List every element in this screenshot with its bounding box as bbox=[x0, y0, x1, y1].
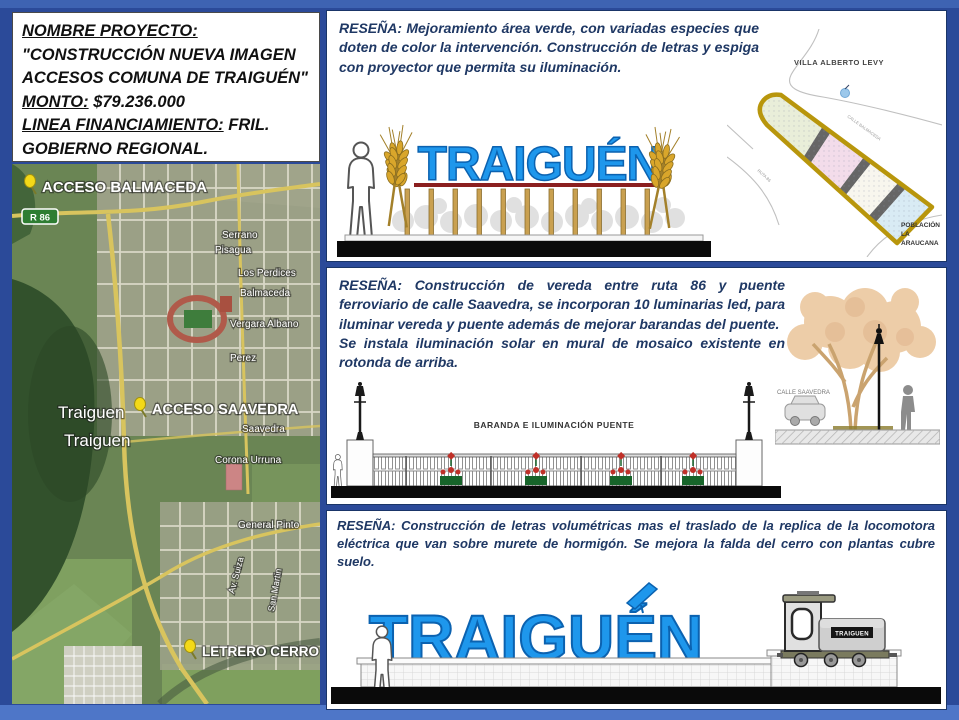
project-name-line2: ACCESOS COMUNA DE TRAIGUÉN" bbox=[22, 67, 310, 91]
map-label-perez: Perez bbox=[230, 353, 256, 364]
map-label-vergara-albano: Vergara Albano bbox=[230, 319, 299, 330]
cerro-sign-svg: TRAIGUÉN bbox=[331, 567, 941, 707]
site-plan-svg: VILLA ALBERTO LEVY CALLE BALMACEDA RUTA … bbox=[727, 29, 942, 257]
plan-label-villa: VILLA ALBERTO LEVY bbox=[794, 58, 884, 67]
sign-elevation-svg: TRAIGUÉN bbox=[331, 113, 716, 261]
cerro-sign-base bbox=[331, 687, 941, 704]
sign-word-traiguen: TRAIGUÉN bbox=[418, 137, 661, 191]
bridge-pillar-right bbox=[736, 440, 762, 486]
water-drop-icon bbox=[841, 85, 850, 98]
locomotive-icon: TRAIGUEN bbox=[777, 591, 897, 667]
resena-2: RESEÑA: Construcción de vereda entre rut… bbox=[339, 276, 785, 373]
map-label-los-perdices: Los Perdices bbox=[238, 268, 296, 279]
resena-1-text: Mejoramiento área verde, con variadas es… bbox=[339, 20, 759, 75]
map-label-letrero-cerro: LETRERO CERRO bbox=[202, 644, 319, 659]
resena-2-label: RESEÑA: bbox=[339, 277, 402, 293]
map-label-serrano: Serrano bbox=[222, 230, 258, 241]
bridge-base bbox=[331, 486, 781, 498]
project-info-box: NOMBRE PROYECTO: "CONSTRUCCIÓN NUEVA IMA… bbox=[12, 12, 320, 162]
map-label-acceso-saavedra: ACCESO SAAVEDRA bbox=[152, 402, 299, 418]
street-lamp-icon bbox=[743, 382, 755, 440]
monto-label: MONTO: bbox=[22, 93, 89, 111]
map-label-corona-urruna: Corona Urruna bbox=[215, 455, 282, 466]
project-name-line1: "CONSTRUCCIÓN NUEVA IMAGEN bbox=[22, 44, 310, 68]
resena-3-label: RESEÑA: bbox=[337, 518, 396, 533]
sign-platform bbox=[345, 235, 703, 241]
map-label-general-pinto: General Pinto bbox=[238, 520, 300, 531]
route-badge: R 86 bbox=[22, 209, 58, 224]
railing bbox=[373, 454, 736, 486]
sign-base bbox=[337, 241, 711, 257]
bridge-label: BARANDA E ILUMINACIÓN PUENTE bbox=[474, 419, 635, 430]
panel-letrero-cerro: RESEÑA: Construcción de letras volumétri… bbox=[326, 510, 947, 710]
resena-2-text2: Se instala iluminación solar en mural de… bbox=[339, 335, 785, 370]
linea-value: FRIL. bbox=[224, 116, 270, 134]
satellite-map: R 86 ACCESO BALMACEDA Serrano Pisagua Lo… bbox=[12, 164, 320, 704]
locomotive-plate: TRAIGUEN bbox=[835, 632, 869, 638]
pink-building bbox=[226, 464, 242, 490]
panel-acceso-balmaceda: RESEÑA: Mejoramiento área verde, con var… bbox=[326, 10, 947, 262]
resena-3: RESEÑA: Construcción de letras volumétri… bbox=[337, 517, 935, 571]
resena-3-text: Construcción de letras volumétricas mas … bbox=[337, 518, 935, 569]
map-label-acceso-balmaceda: ACCESO BALMACEDA bbox=[42, 179, 207, 196]
subdivision-blocks bbox=[64, 646, 142, 704]
map-label-saavedra: Saavedra bbox=[242, 424, 285, 435]
person-icon bbox=[348, 143, 374, 239]
map-label-traiguen-2: Traiguen bbox=[64, 431, 130, 450]
satellite-map-svg: R 86 ACCESO BALMACEDA Serrano Pisagua Lo… bbox=[12, 164, 320, 704]
street-section-svg: CALLE SAAVEDRA bbox=[775, 272, 940, 452]
top-border-strip bbox=[0, 0, 959, 8]
street-lamp-icon bbox=[354, 382, 366, 440]
shrubs bbox=[392, 197, 685, 233]
route-badge-text: R 86 bbox=[30, 213, 50, 224]
person-silhouette bbox=[901, 385, 915, 430]
gobierno-line: GOBIERNO REGIONAL. bbox=[22, 138, 310, 162]
resena-1-label: RESEÑA: bbox=[339, 20, 402, 36]
person-icon bbox=[333, 455, 342, 487]
map-label-traiguen-1: Traiguen bbox=[58, 403, 124, 422]
bridge-pillar-left bbox=[347, 440, 373, 486]
monto-value: $79.236.000 bbox=[89, 93, 185, 111]
map-label-pisagua: Pisagua bbox=[215, 245, 252, 256]
project-name-label: NOMBRE PROYECTO: bbox=[22, 22, 198, 40]
linea-label: LINEA FINANCIAMIENTO: bbox=[22, 116, 224, 134]
car-icon bbox=[785, 396, 825, 426]
project-slide: NOMBRE PROYECTO: "CONSTRUCCIÓN NUEVA IMA… bbox=[0, 0, 959, 720]
resena-2-text: Construcción de vereda entre ruta 86 y p… bbox=[339, 277, 785, 332]
plan-label-poblacion: POBLACIÓN LA ARAUCANA bbox=[901, 220, 940, 247]
plan-poblacion-l1: POBLACIÓN bbox=[901, 220, 940, 229]
resena-1: RESEÑA: Mejoramiento área verde, con var… bbox=[339, 19, 759, 77]
plan-label-calle: CALLE BALMACEDA bbox=[846, 114, 882, 142]
plan-poblacion-l3: ARAUCANA bbox=[901, 240, 939, 247]
plan-poblacion-l2: LA bbox=[901, 231, 910, 238]
calle-saavedra-label: CALLE SAAVEDRA bbox=[777, 390, 830, 396]
bridge-elevation-svg: BARANDA E ILUMINACIÓN PUENTE bbox=[331, 380, 781, 502]
street-lamp-icon bbox=[874, 324, 884, 430]
murete-hormigon bbox=[361, 664, 771, 687]
panel-acceso-saavedra: RESEÑA: Construcción de vereda entre rut… bbox=[326, 267, 947, 505]
plan-label-ruta: RUTA 86 bbox=[756, 168, 772, 183]
murete-cap bbox=[357, 658, 775, 664]
map-label-balmaceda: Balmaceda bbox=[240, 288, 290, 299]
